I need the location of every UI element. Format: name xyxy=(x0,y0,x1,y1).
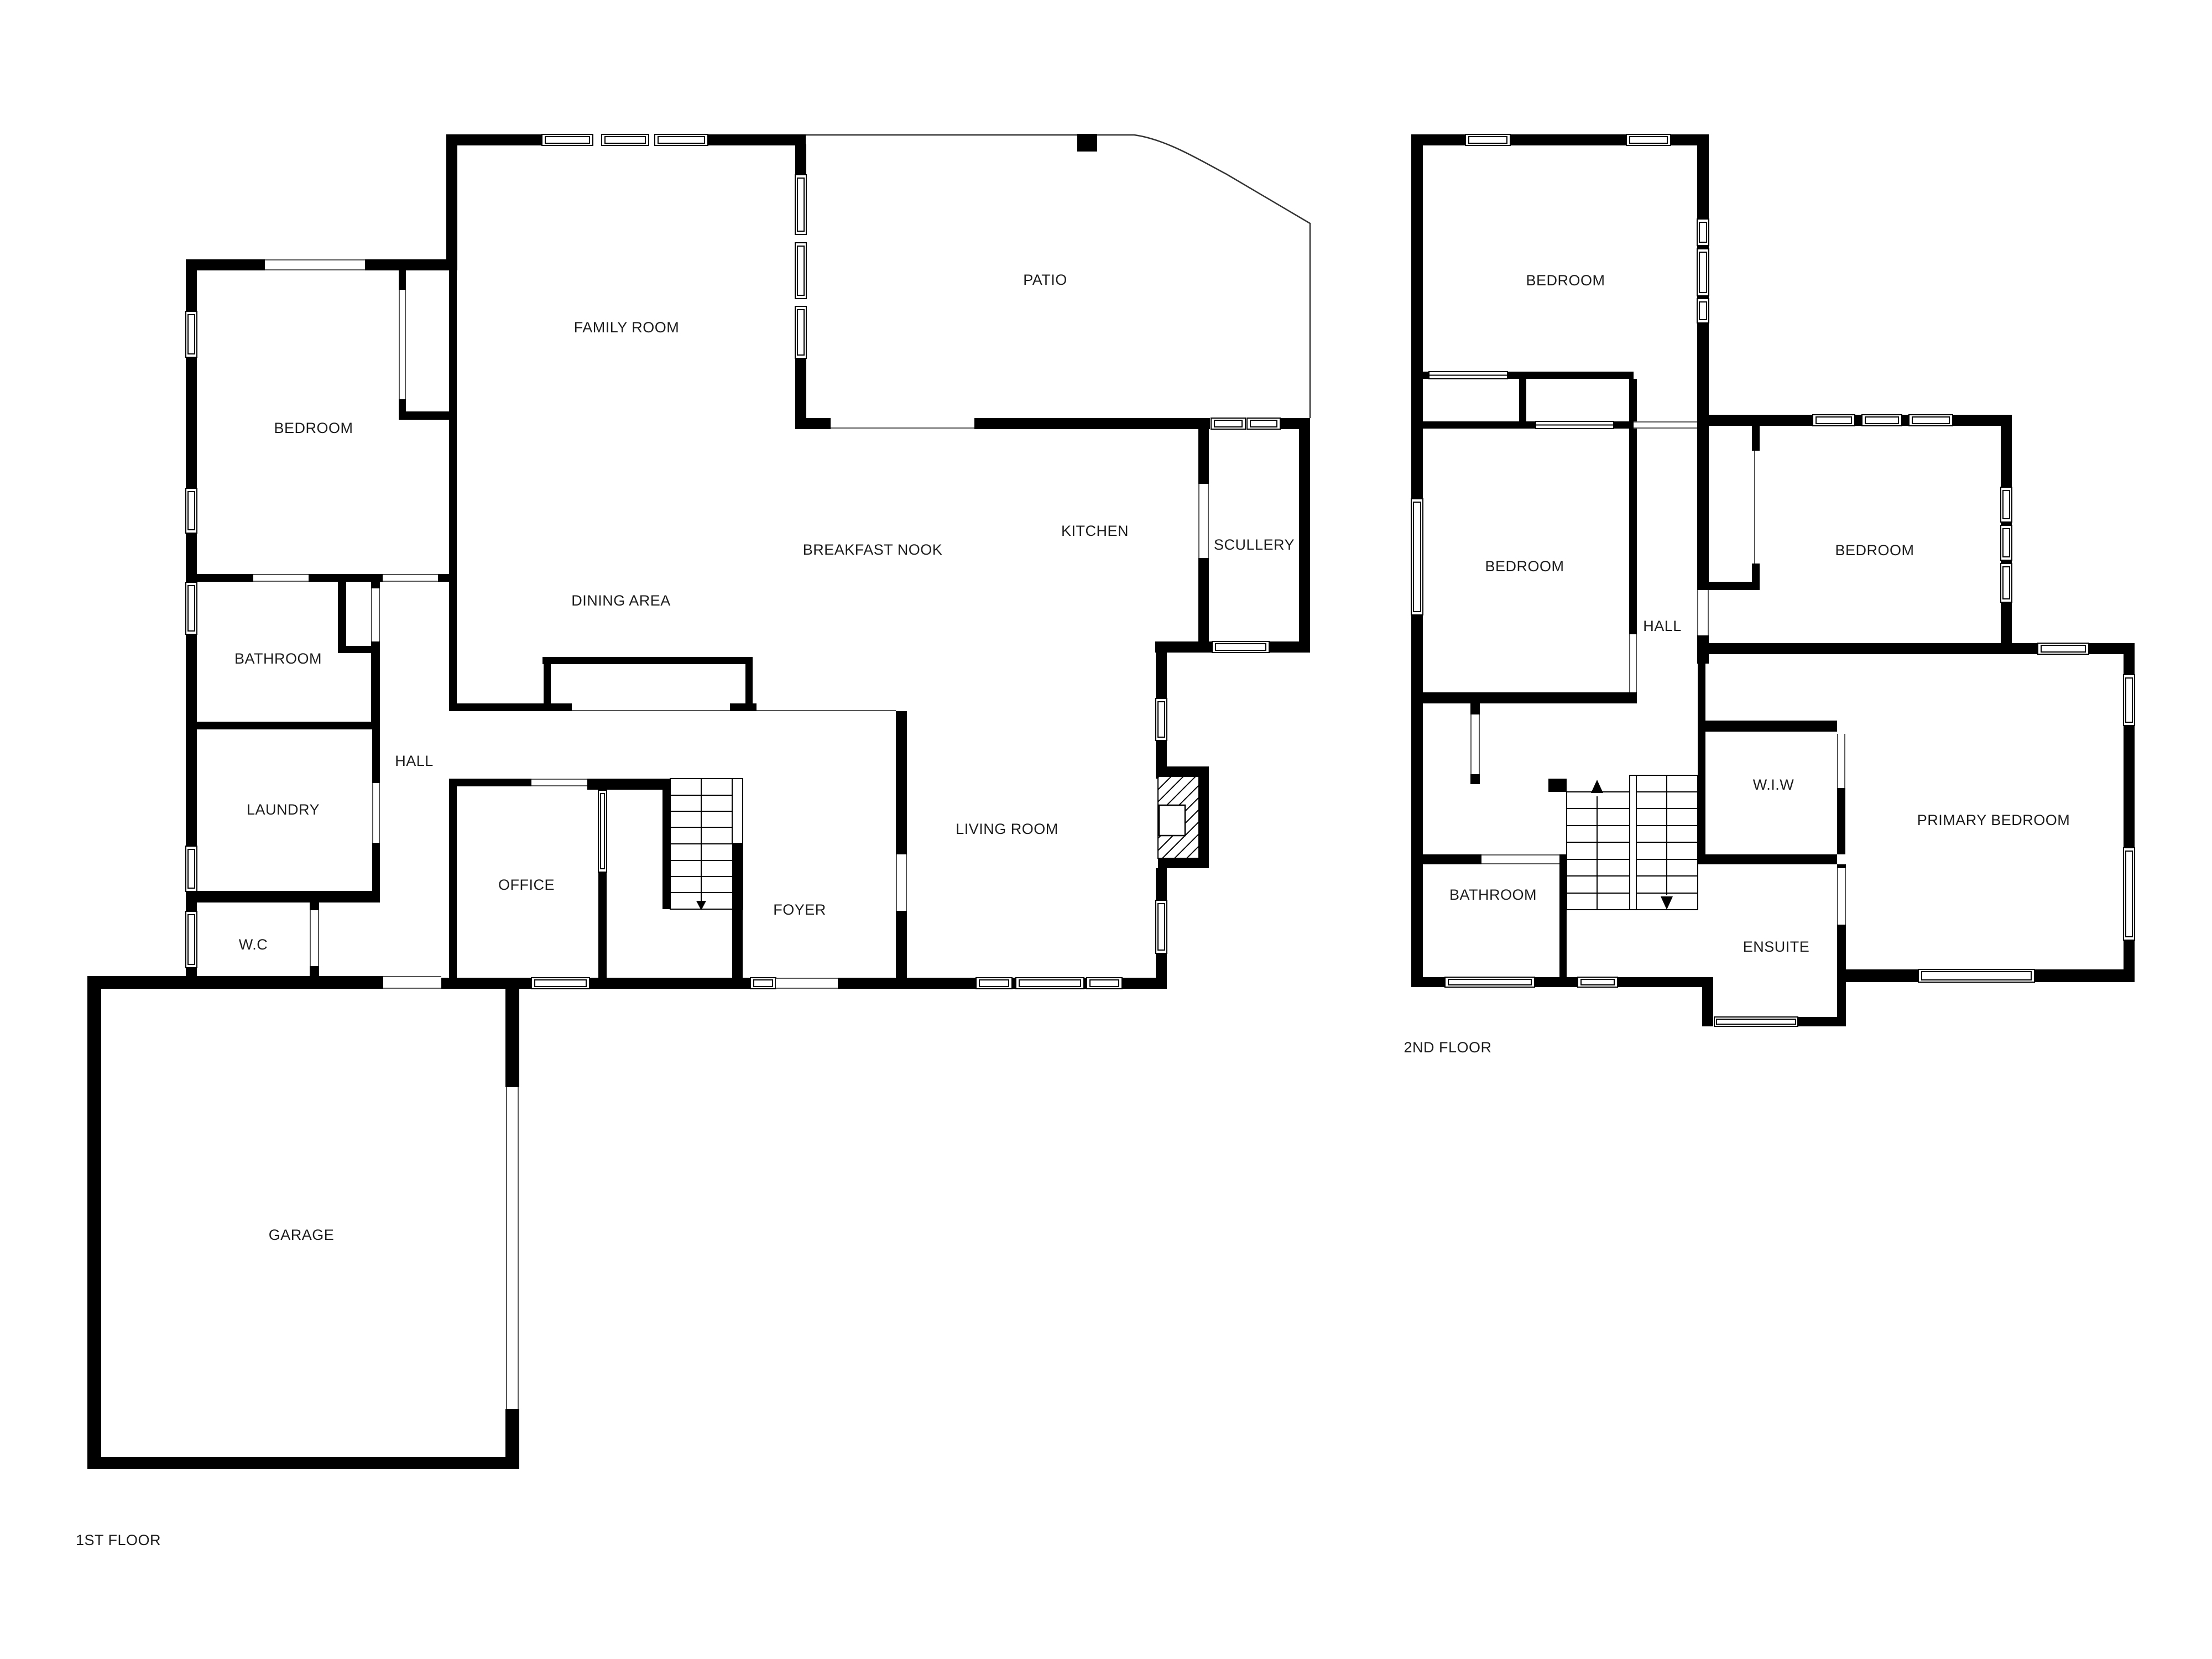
svg-text:HALL: HALL xyxy=(395,753,434,769)
svg-text:2ND FLOOR: 2ND FLOOR xyxy=(1404,1039,1491,1056)
svg-text:BATHROOM: BATHROOM xyxy=(234,650,322,667)
svg-text:FAMILY ROOM: FAMILY ROOM xyxy=(574,319,680,336)
svg-text:LAUNDRY: LAUNDRY xyxy=(247,801,320,818)
svg-text:W.C: W.C xyxy=(239,936,268,953)
svg-text:KITCHEN: KITCHEN xyxy=(1061,523,1129,539)
svg-text:BATHROOM: BATHROOM xyxy=(1449,886,1537,903)
svg-text:GARAGE: GARAGE xyxy=(269,1227,335,1243)
svg-text:ENSUITE: ENSUITE xyxy=(1743,938,1810,955)
svg-text:HALL: HALL xyxy=(1643,618,1682,634)
svg-text:PATIO: PATIO xyxy=(1023,272,1067,288)
svg-text:FOYER: FOYER xyxy=(773,901,826,918)
svg-text:PRIMARY BEDROOM: PRIMARY BEDROOM xyxy=(1917,812,2070,828)
svg-text:BEDROOM: BEDROOM xyxy=(274,420,353,436)
svg-text:W.I.W: W.I.W xyxy=(1753,776,1794,793)
svg-text:BEDROOM: BEDROOM xyxy=(1526,272,1605,289)
svg-text:DINING AREA: DINING AREA xyxy=(571,592,671,609)
svg-text:BEDROOM: BEDROOM xyxy=(1485,558,1564,575)
svg-text:BEDROOM: BEDROOM xyxy=(1835,542,1914,559)
svg-text:OFFICE: OFFICE xyxy=(498,877,555,893)
svg-text:BREAKFAST NOOK: BREAKFAST NOOK xyxy=(803,541,943,558)
svg-text:1ST FLOOR: 1ST FLOOR xyxy=(76,1532,161,1548)
svg-text:LIVING ROOM: LIVING ROOM xyxy=(956,821,1058,837)
svg-text:SCULLERY: SCULLERY xyxy=(1214,536,1295,553)
